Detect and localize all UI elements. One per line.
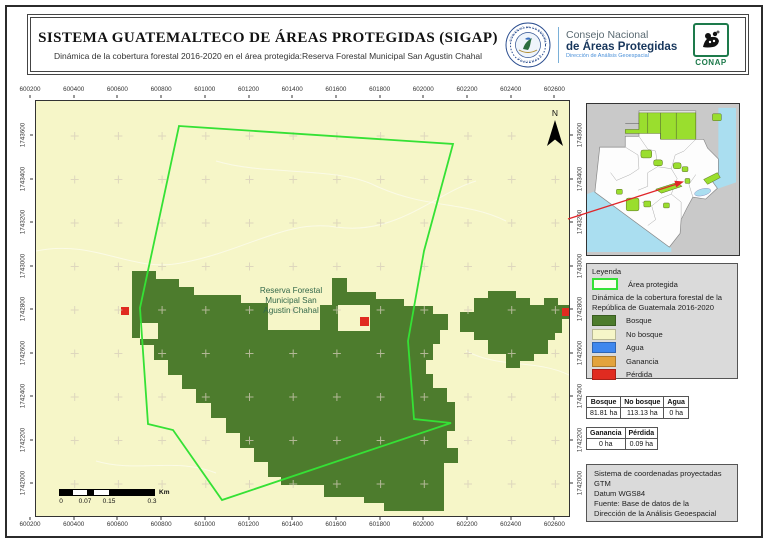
- org-name: Consejo Nacional de Áreas Protegidas Dir…: [566, 30, 686, 60]
- x-tick-label: 601800: [369, 521, 390, 528]
- table-value-row: 81.81 ha113.13 ha0 ha: [587, 408, 689, 419]
- credits-line: Sistema de coordenadas proyectadas: [594, 469, 730, 479]
- x-tick-label: 602600: [544, 86, 565, 93]
- legend-subtitle: Dinámica de la cobertura forestal de la …: [592, 293, 732, 312]
- x-tick-label: 602600: [544, 521, 565, 528]
- x-tick-label: 600200: [19, 86, 40, 93]
- x-tick-label: 601000: [194, 521, 215, 528]
- main-map-canvas: Reserva Forestal Municipal San Agustin C…: [36, 101, 569, 516]
- axis-bottom: 6002006004006006006008006010006012006014…: [35, 517, 568, 533]
- y-tick-label: 1743200: [20, 210, 27, 235]
- y-tick-mark: [30, 352, 33, 353]
- axis-right: 1743600174340017432001743000174280017426…: [570, 100, 587, 515]
- legend-title: Leyenda: [592, 267, 732, 276]
- y-tick-mark: [570, 483, 573, 484]
- y-tick-mark: [570, 396, 573, 397]
- scale-bar: Km 0 0.07 0.15 0.3: [59, 489, 199, 511]
- credits-line: GTM: [594, 479, 730, 489]
- credits-line: Dirección de la Análisis Geoespacial: [594, 509, 730, 519]
- x-tick-mark: [335, 95, 336, 98]
- conap-logo: CONAP: [693, 23, 729, 67]
- table-header-cell: Agua: [664, 397, 689, 408]
- x-tick-mark: [204, 95, 205, 98]
- x-tick-mark: [423, 95, 424, 98]
- page-subtitle: Dinámica de la cobertura forestal 2016-2…: [53, 51, 483, 61]
- legend-item-swatch: [592, 329, 616, 340]
- x-tick-mark: [292, 95, 293, 98]
- y-tick-label: 1742800: [20, 297, 27, 322]
- y-tick-mark: [30, 483, 33, 484]
- x-tick-mark: [554, 95, 555, 98]
- legend-item-swatch: [592, 342, 616, 353]
- y-tick-mark: [30, 396, 33, 397]
- table-header-row: BosqueNo bosqueAgua: [587, 397, 689, 408]
- legend-item-swatch: [592, 315, 616, 326]
- legend-item-label: Ganancia: [626, 357, 659, 366]
- legend-item-label: Bosque: [626, 316, 652, 325]
- x-tick-label: 600600: [107, 521, 128, 528]
- y-tick-mark: [570, 178, 573, 179]
- scale-tick-0: 0: [59, 498, 63, 505]
- scale-tick-03: 0.3: [147, 498, 156, 505]
- scale-tick-015: 0.15: [103, 498, 116, 505]
- x-tick-label: 601600: [325, 86, 346, 93]
- main-map: Reserva Forestal Municipal San Agustin C…: [35, 100, 570, 517]
- x-tick-label: 601400: [282, 86, 303, 93]
- x-tick-mark: [73, 95, 74, 98]
- table-value-cell: 0.09 ha: [625, 439, 658, 450]
- x-tick-mark: [161, 95, 162, 98]
- title-area: SISTEMA GUATEMALTECO DE ÁREAS PROTEGIDAS…: [31, 28, 505, 61]
- change-table: GananciaPérdida0 ha0.09 ha: [586, 427, 658, 450]
- y-tick-label: 1742400: [577, 384, 584, 409]
- legend-area-item: Área protegida: [592, 278, 732, 290]
- table-value-cell: 81.81 ha: [587, 408, 621, 419]
- logo-divider: [558, 27, 559, 63]
- conap-label: CONAP: [693, 58, 729, 67]
- x-tick-label: 602200: [456, 86, 477, 93]
- table-header-cell: No bosque: [621, 397, 664, 408]
- svg-text:Agustin Chahal: Agustin Chahal: [263, 306, 319, 315]
- credits-line: Fuente: Base de datos de la: [594, 499, 730, 509]
- scale-bar-segments: [59, 489, 155, 496]
- y-tick-label: 1743000: [577, 253, 584, 278]
- x-tick-label: 602400: [500, 521, 521, 528]
- y-tick-label: 1743400: [577, 166, 584, 191]
- x-tick-label: 600400: [63, 521, 84, 528]
- x-tick-label: 600200: [19, 521, 40, 528]
- logos-group: GOBIERNO DE LA REPÚBLICA GUATEMALA Conse…: [505, 22, 745, 68]
- y-tick-label: 1742200: [20, 427, 27, 452]
- table-value-cell: 113.13 ha: [621, 408, 664, 419]
- y-tick-label: 1742200: [577, 427, 584, 452]
- x-tick-mark: [467, 95, 468, 98]
- reserve-label: Reserva Forestal Municipal San Agustin C…: [260, 286, 323, 315]
- x-tick-label: 601400: [282, 521, 303, 528]
- y-tick-mark: [30, 178, 33, 179]
- table-value-row: 0 ha0.09 ha: [587, 439, 658, 450]
- coverage-table: BosqueNo bosqueAgua81.81 ha113.13 ha0 ha: [586, 396, 689, 419]
- x-tick-mark: [117, 95, 118, 98]
- x-tick-label: 601200: [238, 86, 259, 93]
- y-tick-label: 1743600: [20, 123, 27, 148]
- x-tick-label: 600400: [63, 86, 84, 93]
- y-tick-label: 1742600: [577, 340, 584, 365]
- x-tick-label: 602200: [456, 521, 477, 528]
- svg-text:N: N: [552, 108, 558, 118]
- y-tick-mark: [570, 439, 573, 440]
- x-tick-mark: [30, 517, 31, 520]
- y-tick-mark: [570, 222, 573, 223]
- legend-item: Ganancia: [592, 356, 732, 367]
- y-tick-mark: [570, 135, 573, 136]
- x-tick-label: 601800: [369, 86, 390, 93]
- inset-map: [586, 103, 740, 256]
- y-tick-label: 1743000: [20, 253, 27, 278]
- guatemala-inset-canvas: [587, 104, 736, 252]
- legend-item-label: No bosque: [626, 330, 663, 339]
- x-tick-label: 601600: [325, 521, 346, 528]
- x-tick-label: 602000: [413, 86, 434, 93]
- org-line1: Consejo Nacional: [566, 30, 686, 41]
- legend: Leyenda Área protegida Dinámica de la co…: [586, 263, 738, 379]
- header: SISTEMA GUATEMALTECO DE ÁREAS PROTEGIDAS…: [27, 14, 749, 75]
- x-tick-label: 602400: [500, 86, 521, 93]
- x-tick-mark: [379, 95, 380, 98]
- legend-items: BosqueNo bosqueAguaGananciaPérdida: [592, 315, 732, 380]
- legend-item-label: Agua: [626, 343, 644, 352]
- legend-item: Pérdida: [592, 369, 732, 380]
- x-tick-label: 601000: [194, 86, 215, 93]
- map-document-page: SISTEMA GUATEMALTECO DE ÁREAS PROTEGIDAS…: [0, 0, 768, 543]
- y-tick-label: 1742400: [20, 384, 27, 409]
- table-value-cell: 0 ha: [664, 408, 689, 419]
- x-tick-label: 600800: [151, 521, 172, 528]
- y-tick-label: 1742000: [20, 471, 27, 496]
- legend-item-swatch: [592, 356, 616, 367]
- credits-line: Datum WGS84: [594, 489, 730, 499]
- axis-top: 6002006004006006006008006010006012006014…: [35, 83, 568, 99]
- table-value-cell: 0 ha: [587, 439, 626, 450]
- conap-jaguar-icon: [693, 23, 729, 57]
- y-tick-mark: [570, 309, 573, 310]
- table-header-cell: Bosque: [587, 397, 621, 408]
- y-tick-mark: [30, 439, 33, 440]
- y-tick-mark: [30, 135, 33, 136]
- table-header-row: GananciaPérdida: [587, 428, 658, 439]
- legend-item-swatch: [592, 369, 616, 380]
- government-seal-icon: GOBIERNO DE LA REPÚBLICA GUATEMALA: [505, 22, 551, 68]
- credits-box: Sistema de coordenadas proyectadasGTMDat…: [586, 464, 738, 522]
- table-header-cell: Ganancia: [587, 428, 626, 439]
- legend-item: No bosque: [592, 329, 732, 340]
- svg-text:Municipal San: Municipal San: [265, 296, 317, 305]
- x-tick-mark: [248, 95, 249, 98]
- axis-left: 1743600174340017432001743000174280017426…: [16, 100, 33, 515]
- legend-item: Bosque: [592, 315, 732, 326]
- org-line2: de Áreas Protegidas: [566, 41, 686, 53]
- header-inner-frame: SISTEMA GUATEMALTECO DE ÁREAS PROTEGIDAS…: [30, 17, 746, 72]
- scale-unit: Km: [159, 489, 169, 496]
- y-tick-label: 1742000: [577, 471, 584, 496]
- y-tick-mark: [30, 222, 33, 223]
- area-protegida-label: Área protegida: [628, 280, 678, 289]
- y-tick-mark: [570, 352, 573, 353]
- x-tick-mark: [30, 95, 31, 98]
- y-tick-label: 1742600: [20, 340, 27, 365]
- x-tick-label: 600800: [151, 86, 172, 93]
- x-tick-label: 600600: [107, 86, 128, 93]
- page-title: SISTEMA GUATEMALTECO DE ÁREAS PROTEGIDAS…: [31, 30, 505, 47]
- y-tick-label: 1743200: [577, 210, 584, 235]
- x-tick-mark: [510, 95, 511, 98]
- org-line3: Dirección de Análisis Geoespacial: [566, 54, 686, 60]
- y-tick-mark: [30, 309, 33, 310]
- legend-item-label: Pérdida: [626, 370, 652, 379]
- svg-text:Reserva Forestal: Reserva Forestal: [260, 286, 323, 295]
- y-tick-mark: [570, 265, 573, 266]
- y-tick-label: 1743400: [20, 166, 27, 191]
- y-tick-label: 1743600: [577, 123, 584, 148]
- scale-tick-007: 0.07: [79, 498, 92, 505]
- area-protegida-swatch: [592, 278, 618, 290]
- x-tick-label: 602000: [413, 521, 434, 528]
- y-tick-label: 1742800: [577, 297, 584, 322]
- x-tick-label: 601200: [238, 521, 259, 528]
- legend-item: Agua: [592, 342, 732, 353]
- table-header-cell: Pérdida: [625, 428, 658, 439]
- y-tick-mark: [30, 265, 33, 266]
